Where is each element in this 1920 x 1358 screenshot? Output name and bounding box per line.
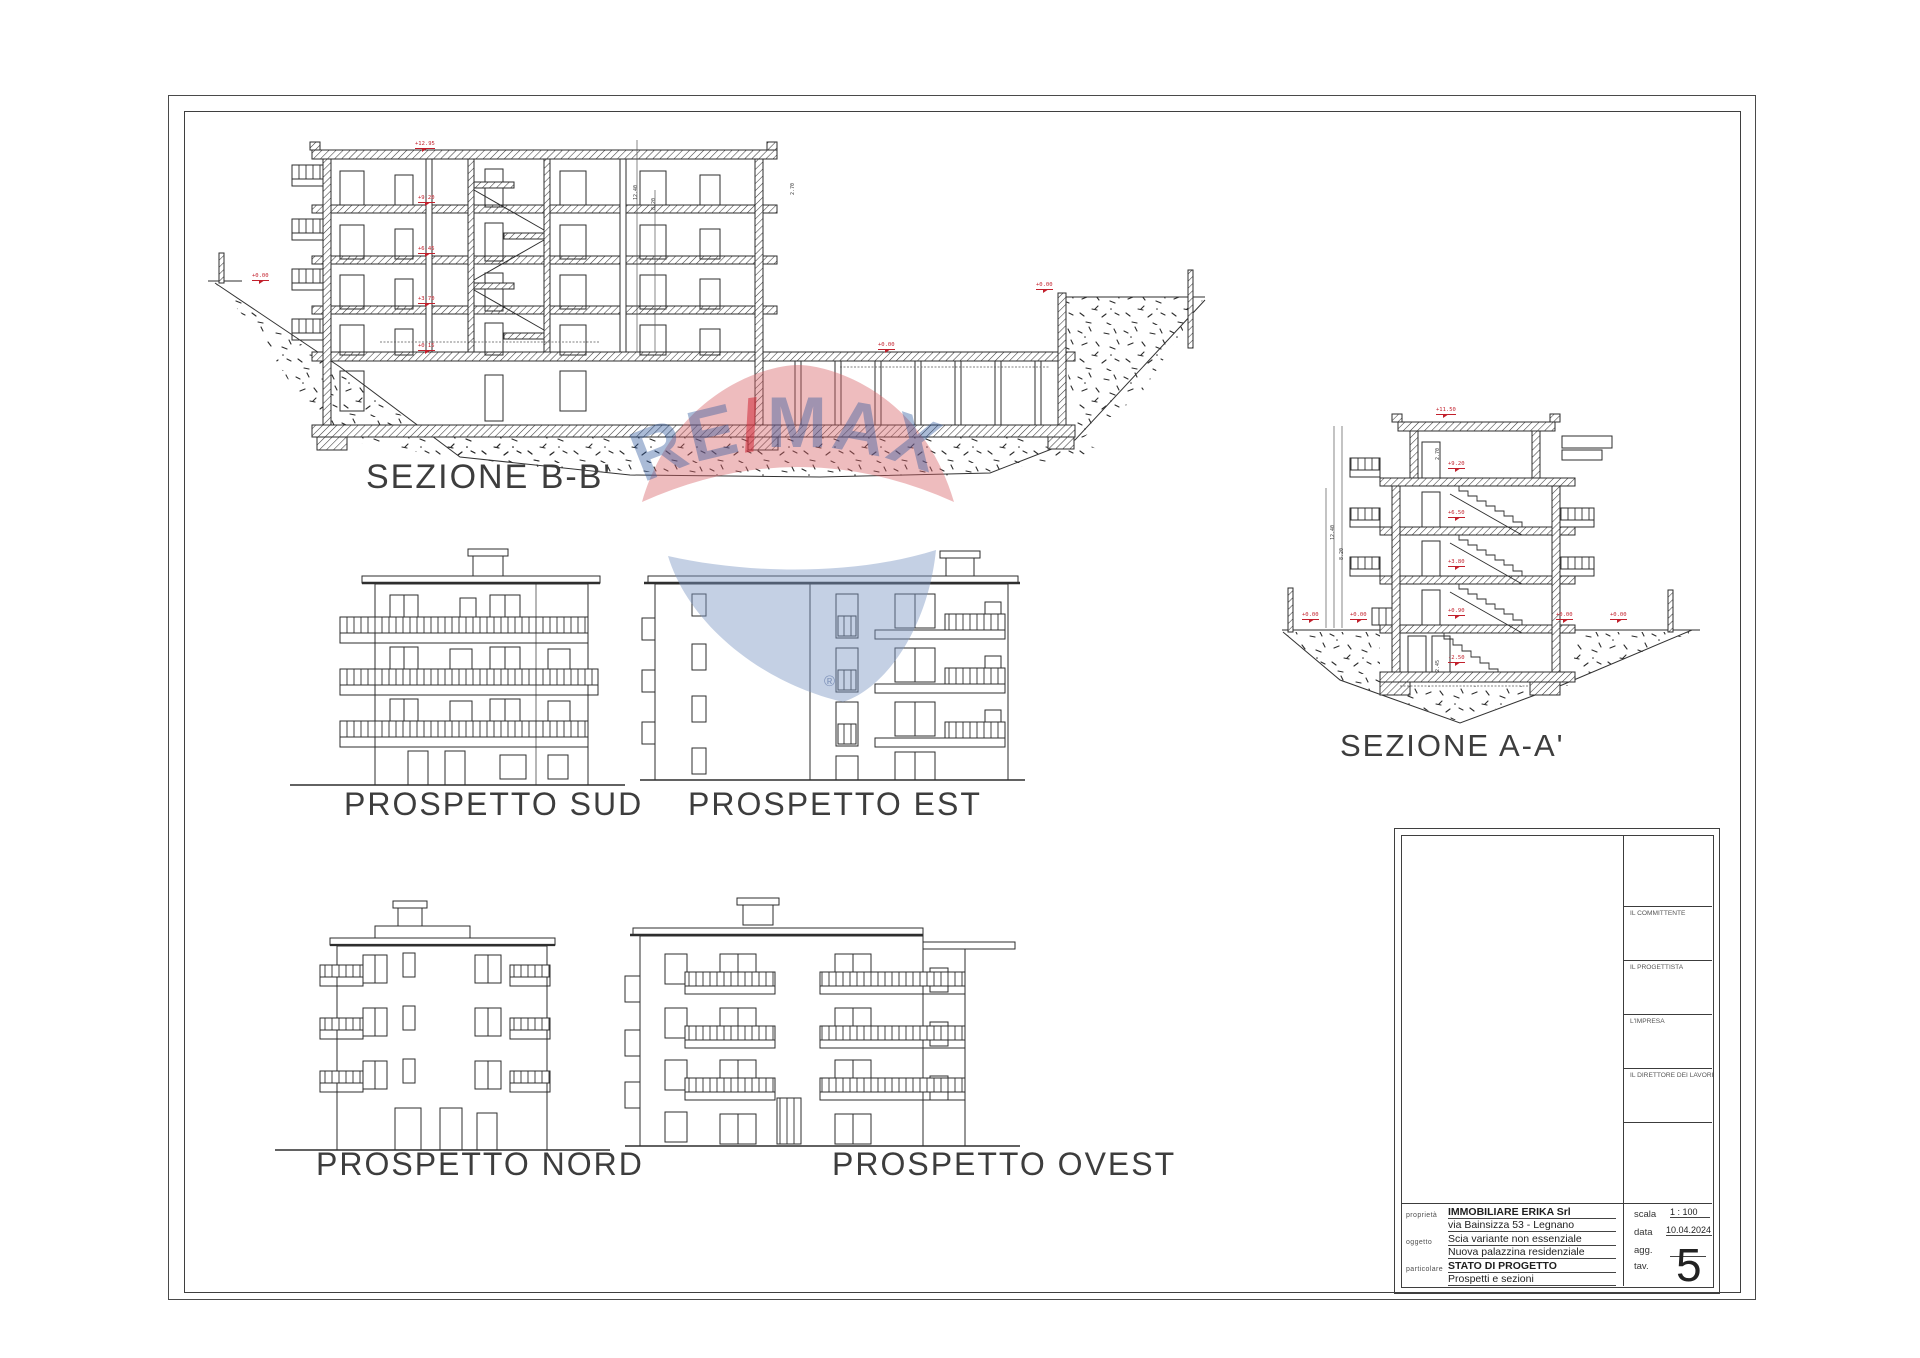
elevation-balconies [320, 965, 550, 1092]
particolare-value-1: STATO DI PROGETTO [1448, 1260, 1616, 1273]
dimension-text: 2.70 [790, 183, 796, 195]
cell-line [1623, 1068, 1712, 1069]
ground-marker: +0.00 [1036, 283, 1053, 293]
level-marker: -2.50 [1448, 656, 1465, 666]
proprieta-label: proprietà [1406, 1212, 1437, 1219]
proprieta-value-2: via Bainsizza 53 - Legnano [1448, 1219, 1616, 1232]
remax-wordmark: RE/MAX [620, 383, 953, 497]
elevation-roof [362, 549, 600, 583]
level-marker: +0.90 [1448, 609, 1465, 619]
agg-label: agg. [1634, 1245, 1653, 1256]
prospetto-ovest-label: PROSPETTO OVEST [832, 1146, 1176, 1183]
registered-trademark-icon: ® [824, 673, 835, 690]
ground-marker: +0.00 [1610, 613, 1627, 623]
terrain-ground [1282, 588, 1700, 723]
dimension-text: 8.20 [1339, 548, 1345, 560]
dimension-text: 2.45 [1435, 660, 1441, 672]
oggetto-value-1: Scia variante non essenziale [1448, 1233, 1616, 1246]
data-value: 10.04.2024 [1666, 1225, 1712, 1236]
level-marker: +0.15 [418, 344, 435, 354]
level-marker: +3.80 [1448, 560, 1465, 570]
prospetto-ovest-drawing [625, 888, 1020, 1160]
prospetto-nord-label: PROSPETTO NORD [316, 1146, 644, 1183]
cell-line [1623, 960, 1712, 961]
ground-marker: +0.00 [1556, 613, 1573, 623]
elevation-balconies [340, 617, 598, 747]
sezione-bb-label: SEZIONE B-B' [366, 458, 612, 497]
signature-committente: IL COMMITTENTE [1630, 910, 1685, 917]
level-marker: +3.70 [418, 297, 435, 307]
prospetto-sud-label: PROSPETTO SUD [344, 786, 643, 823]
level-marker: +6.50 [1448, 511, 1465, 521]
elevation-roof [330, 901, 555, 945]
drawing-sheet: +12.95 +9.20 +6.45 +3.70 +0.15 +0.00 +0.… [0, 0, 1920, 1358]
prospetto-sud-drawing [290, 543, 625, 795]
dimension-text: 12.40 [1330, 525, 1336, 540]
level-marker: +11.50 [1436, 408, 1456, 418]
sezione-aa-label: SEZIONE A-A' [1340, 728, 1565, 764]
dimension-text: 12.40 [633, 185, 639, 200]
balloon-bottom-blue [668, 550, 936, 702]
signature-impresa: L'IMPRESA [1630, 1018, 1665, 1025]
cell-line [1623, 1014, 1712, 1015]
tav-label: tav. [1634, 1261, 1649, 1272]
dimension-lines [380, 140, 1050, 367]
title-block-divider [1623, 835, 1624, 1286]
prospetto-nord-drawing [275, 893, 610, 1161]
oggetto-label: oggetto [1406, 1239, 1432, 1246]
ground-marker: +0.00 [1350, 613, 1367, 623]
tav-number: 5 [1676, 1238, 1702, 1292]
table-top-line [1401, 1203, 1712, 1204]
cell-line [1623, 906, 1712, 907]
oggetto-value-2: Nuova palazzina residenziale [1448, 1246, 1616, 1259]
level-marker: +9.20 [418, 196, 435, 206]
elevation-balconies [625, 972, 965, 1108]
proprieta-value-1: IMMOBILIARE ERIKA Srl [1448, 1206, 1616, 1219]
sezione-aa-drawing [1280, 398, 1720, 743]
particolare-value-2: Prospetti e sezioni [1448, 1273, 1616, 1286]
signature-progettista: IL PROGETTISTA [1630, 964, 1683, 971]
dimension-text: 2.70 [1435, 448, 1441, 460]
ground-marker: +0.00 [252, 274, 269, 284]
level-marker: +9.20 [1448, 462, 1465, 472]
elevation-windows [363, 953, 501, 1150]
cell-line [1623, 1122, 1712, 1123]
remax-watermark: RE/MAX ® [628, 360, 968, 710]
section-slabs [1380, 414, 1575, 682]
scala-label: scala [1634, 1209, 1656, 1220]
dimension-text: 8.20 [651, 198, 657, 210]
level-marker: +12.95 [415, 142, 435, 152]
data-label: data [1634, 1227, 1653, 1238]
scala-value: 1 : 100 [1670, 1207, 1710, 1218]
particolare-label: particolare [1406, 1266, 1443, 1273]
ground-marker: +0.00 [878, 343, 895, 353]
ground-marker: +0.00 [1302, 613, 1319, 623]
level-marker: +6.45 [418, 247, 435, 257]
signature-direttore-lavori: IL DIRETTORE DEI LAVORI [1630, 1072, 1713, 1079]
prospetto-est-label: PROSPETTO EST [688, 786, 982, 823]
remax-balloon-icon: RE/MAX ® [620, 365, 958, 702]
elevation-roof [630, 898, 1015, 949]
